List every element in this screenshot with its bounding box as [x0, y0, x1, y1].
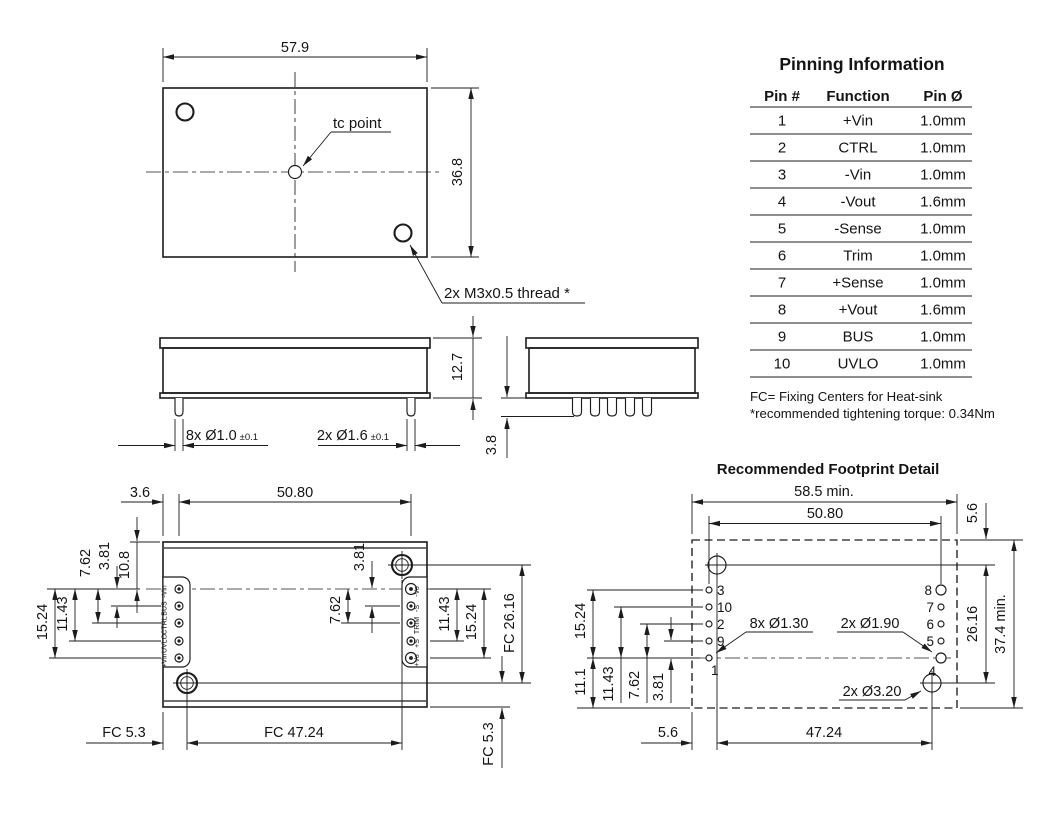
dim-label: 11.43 — [437, 596, 453, 631]
dim-label-width: 57.9 — [281, 40, 309, 56]
svg-text:7: 7 — [778, 275, 786, 292]
svg-text:1.0mm: 1.0mm — [920, 221, 966, 238]
svg-text:9: 9 — [778, 329, 786, 346]
svg-text:4: 4 — [778, 194, 786, 211]
dim-label-depth: 36.8 — [450, 158, 466, 186]
svg-text:-Vin: -Vin — [845, 167, 871, 184]
dim-label: 50.80 — [277, 485, 313, 501]
pin-label: -Vo — [414, 586, 421, 597]
pin-label: CTRL — [162, 616, 169, 634]
dim-label-pin-length: 3.8 — [484, 435, 500, 455]
dim-label: 15.24 — [35, 604, 51, 640]
dim-label: 10.8 — [117, 551, 133, 579]
end-pin-1 — [573, 398, 582, 416]
pin-label: BUS — [162, 601, 169, 616]
svg-text:1.0mm: 1.0mm — [920, 275, 966, 292]
dim-label: 11.43 — [601, 666, 617, 701]
end-pin-4 — [626, 398, 635, 416]
dim-label: 3.81 — [651, 673, 667, 701]
pin-number: 8 — [924, 583, 932, 598]
dim-label: 11.43 — [55, 596, 71, 631]
end-pin-2 — [591, 398, 600, 416]
svg-text:1: 1 — [778, 113, 786, 130]
table-title: Pinning Information — [779, 54, 944, 74]
note-torque: *recommended tightening torque: 0.34Nm — [750, 406, 995, 421]
tc-point-circle — [289, 166, 302, 179]
dim-label: 3.6 — [130, 485, 150, 501]
pin-number: 5 — [926, 634, 934, 649]
drawing-canvas: 57.9 36.8 tc point 2x M3x0.5 thread * 8x… — [0, 0, 1063, 815]
thread-label: 2x M3x0.5 thread * — [444, 285, 570, 302]
svg-text:CTRL: CTRL — [838, 140, 877, 157]
pin-number: 10 — [717, 600, 732, 615]
dim-label-height: 12.7 — [450, 353, 466, 381]
dim-label: 37.4 min. — [993, 594, 1009, 654]
pin-number: 9 — [717, 634, 725, 649]
dim-label: 47.24 — [806, 725, 842, 741]
pin-number: 7 — [926, 600, 934, 615]
end-pin-3 — [608, 398, 617, 416]
svg-text:-Vout: -Vout — [840, 194, 876, 211]
tc-point-label: tc point — [333, 115, 382, 132]
dim-label: 15.24 — [464, 604, 480, 640]
svg-text:1.0mm: 1.0mm — [920, 113, 966, 130]
hole-callout-large: 2x Ø1.90 — [841, 616, 900, 632]
dim-label: 15.24 — [573, 603, 589, 639]
dim-label: 58.5 min. — [794, 484, 854, 500]
dim-label: 3.81 — [97, 542, 113, 570]
svg-text:1.0mm: 1.0mm — [920, 167, 966, 184]
pin-label: +Vo — [414, 654, 421, 666]
svg-text:1.0mm: 1.0mm — [920, 329, 966, 346]
dim-label: FC 26.16 — [502, 593, 518, 653]
dim-label: 26.16 — [965, 606, 981, 642]
pin-label: UVLO — [162, 633, 169, 653]
dim-label: 3.81 — [352, 543, 368, 571]
pin-label: TRIM — [414, 617, 421, 634]
svg-text:5: 5 — [778, 221, 786, 238]
dim-label: FC 5.3 — [102, 725, 146, 741]
pin-number: 3 — [717, 583, 725, 598]
pin-label: -Vin — [162, 585, 169, 597]
svg-text:3: 3 — [778, 167, 786, 184]
hole-callout-small: 8x Ø1.30 — [750, 616, 809, 632]
svg-text:1.0mm: 1.0mm — [920, 248, 966, 265]
dim-label: FC 47.24 — [264, 725, 324, 741]
svg-text:1.0mm: 1.0mm — [920, 356, 966, 373]
pin-number: 2 — [717, 617, 725, 632]
dim-label: 5.6 — [658, 725, 678, 741]
dim-label: 50.80 — [807, 506, 843, 522]
svg-text:+Sense: +Sense — [832, 275, 883, 292]
pin-number: 6 — [926, 617, 934, 632]
pin-label: +S — [414, 639, 421, 648]
dim-label: 11.1 — [573, 668, 589, 695]
svg-text:-Sense: -Sense — [834, 221, 882, 238]
dim-label: 7.62 — [78, 549, 94, 577]
svg-text:BUS: BUS — [843, 329, 874, 346]
hole-callout-screw: 2x Ø3.20 — [843, 684, 902, 700]
note-fixing-centers: FC= Fixing Centers for Heat-sink — [750, 389, 943, 404]
column-header: Pin Ø — [923, 88, 963, 105]
dim-label: 5.6 — [965, 503, 981, 523]
svg-text:Trim: Trim — [843, 248, 872, 265]
pin-right — [407, 398, 415, 416]
column-header: Pin # — [764, 88, 801, 105]
pin-number: 4 — [928, 664, 936, 679]
svg-text:UVLO: UVLO — [838, 356, 879, 373]
mechanical-drawing-page: 57.9 36.8 tc point 2x M3x0.5 thread * 8x… — [0, 0, 1063, 815]
pin-label: -S — [414, 605, 421, 612]
column-header: Function — [826, 88, 889, 105]
footprint-title: Recommended Footprint Detail — [717, 461, 940, 478]
svg-text:8: 8 — [778, 302, 786, 319]
svg-text:1.6mm: 1.6mm — [920, 302, 966, 319]
svg-text:+Vout: +Vout — [839, 302, 879, 319]
dim-label: FC 5.3 — [481, 722, 497, 766]
dim-label: 7.62 — [328, 596, 344, 624]
end-pin-5 — [643, 398, 652, 416]
dim-label: 7.62 — [627, 671, 643, 699]
svg-text:2: 2 — [778, 140, 786, 157]
svg-text:+Vin: +Vin — [843, 113, 873, 130]
pin-label: +Vin — [162, 653, 169, 667]
pin-left — [175, 398, 183, 416]
svg-text:10: 10 — [774, 356, 791, 373]
svg-text:1.6mm: 1.6mm — [920, 194, 966, 211]
svg-text:6: 6 — [778, 248, 786, 265]
svg-text:1.0mm: 1.0mm — [920, 140, 966, 157]
